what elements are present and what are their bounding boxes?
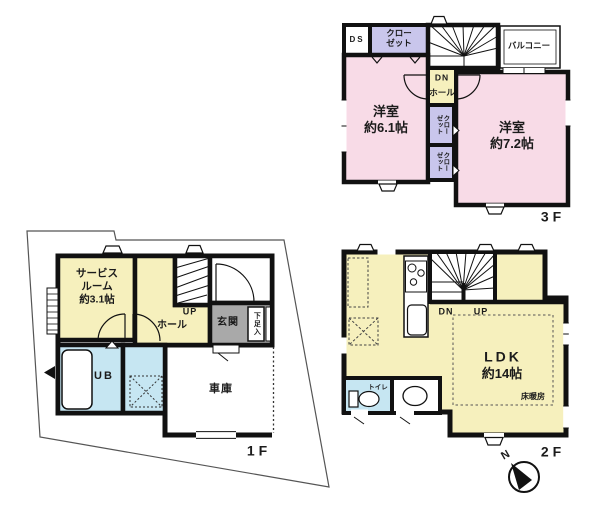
- window-west-hatched: [47, 288, 58, 334]
- duct-space: [344, 25, 370, 55]
- roof-vent-2f-2: [477, 245, 494, 252]
- kitchen-counter: [404, 256, 428, 337]
- bathtub: [62, 350, 92, 409]
- window-2f-east-upper: [563, 323, 569, 345]
- door-gap-basin-south: [396, 410, 414, 425]
- floorplan-drawing: [0, 0, 600, 505]
- balcony: [500, 26, 560, 68]
- closet-3f: [370, 25, 428, 55]
- service-room: [58, 256, 135, 340]
- compass-icon: [509, 462, 539, 492]
- floor-1f: [27, 231, 329, 487]
- window-3f-east: [566, 100, 571, 126]
- bedroom-6-1: [344, 55, 428, 182]
- door-gap-toilet-south: [351, 410, 368, 425]
- entrance-porch: [210, 256, 272, 303]
- vent-south-61: [378, 181, 397, 192]
- roof-vent-north-1: [103, 246, 122, 253]
- roof-vent-north-2: [186, 246, 203, 254]
- roof-vent-stairs-3f: [431, 17, 447, 25]
- floorplan-image: DS クロー ゼット DN ホール バルコニー 洋室 約6.1帖 洋室 約7.2…: [0, 0, 600, 505]
- closet-small-b: [428, 145, 454, 180]
- washbasin: [403, 387, 427, 406]
- window-3f-west: [342, 100, 347, 152]
- stairs-2f-divider-wall: [462, 283, 466, 302]
- toilet-fixture: [349, 391, 379, 407]
- hall-3f: [428, 68, 456, 105]
- floor-2f: [342, 245, 569, 493]
- window-2f-west: [342, 337, 347, 354]
- closet-small-a: [428, 105, 454, 145]
- garage-room: [165, 345, 272, 435]
- window-balcony: [503, 68, 545, 73]
- vent-south-72: [486, 204, 504, 215]
- side-storage-strip: [266, 307, 271, 341]
- garage-door-opening: [196, 431, 236, 439]
- window-2f-north: [377, 250, 396, 255]
- shoe-cabinet-box: [248, 307, 264, 341]
- window-2f-east-lower: [563, 406, 569, 428]
- roof-vent-2f-3: [518, 245, 535, 252]
- vent-2f-south: [484, 433, 504, 445]
- roof-vent-2f-1: [357, 245, 374, 252]
- floor-3f: [342, 17, 571, 215]
